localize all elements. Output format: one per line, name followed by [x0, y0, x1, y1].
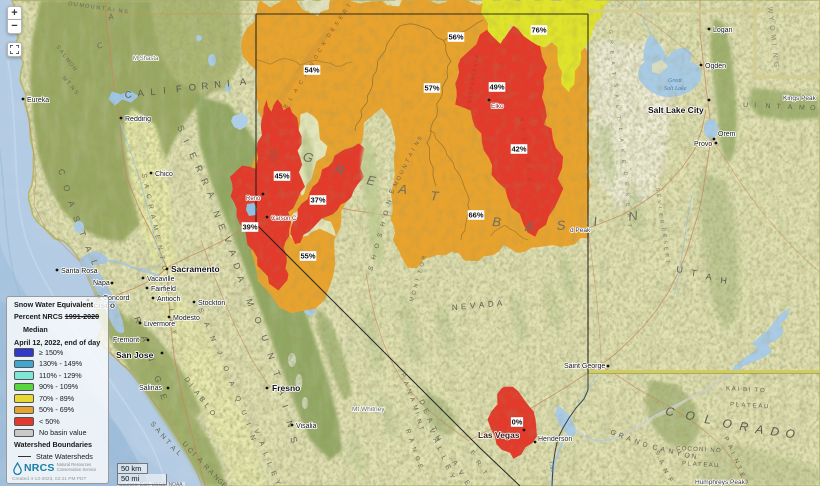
svg-text:66%: 66%: [468, 211, 483, 220]
svg-text:Salinas: Salinas: [139, 385, 162, 392]
svg-text:M Shasta: M Shasta: [133, 56, 159, 62]
svg-text:V: V: [470, 301, 476, 310]
svg-text:Salt Lake City: Salt Lake City: [648, 105, 704, 115]
svg-text:Napa: Napa: [93, 280, 110, 287]
svg-text:N: N: [96, 5, 101, 11]
svg-text:R: R: [201, 81, 209, 92]
svg-text:Salt Lake: Salt Lake: [664, 86, 687, 92]
svg-text:U: U: [714, 463, 719, 469]
svg-text:Kings Peak: Kings Peak: [783, 95, 817, 102]
svg-text:M: M: [523, 157, 530, 162]
svg-text:H: H: [720, 275, 728, 286]
svg-text:Henderson: Henderson: [538, 436, 572, 443]
svg-text:Chico: Chico: [155, 171, 173, 178]
svg-text:O: O: [810, 105, 816, 112]
svg-text:A: A: [479, 300, 485, 309]
svg-text:C: C: [124, 90, 132, 101]
svg-text:Fairfield: Fairfield: [151, 286, 176, 293]
svg-text:Visalia: Visalia: [296, 423, 317, 430]
svg-text:T: T: [610, 72, 616, 76]
svg-text:Antioch: Antioch: [157, 296, 180, 303]
svg-text:42%: 42%: [511, 145, 526, 154]
svg-text:E: E: [753, 403, 757, 409]
svg-text:Elko: Elko: [491, 103, 504, 110]
svg-text:O: O: [722, 416, 733, 431]
svg-text:N: N: [452, 303, 458, 312]
svg-text:A: A: [497, 299, 503, 308]
svg-text:A: A: [741, 403, 745, 409]
svg-text:N: N: [710, 448, 715, 454]
svg-text:E: E: [461, 302, 467, 311]
svg-text:G: G: [607, 30, 613, 35]
svg-text:d Peak: d Peak: [570, 227, 591, 234]
svg-text:Provo: Provo: [694, 141, 712, 148]
svg-text:P: P: [682, 461, 686, 467]
svg-text:55%: 55%: [300, 252, 315, 261]
svg-text:N: N: [214, 79, 222, 90]
svg-text:O: O: [693, 447, 698, 453]
svg-text:Fremont: Fremont: [113, 337, 139, 344]
svg-text:Fresno: Fresno: [272, 383, 300, 393]
svg-text:U: U: [743, 102, 748, 109]
svg-text:O: O: [760, 388, 765, 394]
svg-text:B: B: [743, 387, 747, 393]
svg-text:F: F: [176, 84, 183, 95]
svg-text:Logan: Logan: [713, 27, 733, 34]
svg-text:Stockton: Stockton: [198, 300, 225, 307]
svg-text:U: U: [90, 4, 95, 10]
svg-text:Ogden: Ogden: [705, 63, 726, 70]
svg-text:Sacramento: Sacramento: [171, 264, 220, 274]
svg-text:Eureka: Eureka: [27, 97, 49, 104]
svg-text:A: A: [524, 219, 534, 234]
svg-text:Reno: Reno: [246, 196, 261, 202]
svg-text:A: A: [693, 462, 697, 468]
svg-text:B: B: [492, 214, 502, 230]
svg-text:45%: 45%: [274, 172, 289, 181]
svg-text:Livermore: Livermore: [144, 321, 175, 328]
svg-text:O: O: [685, 408, 696, 423]
svg-text:T: T: [754, 388, 758, 394]
svg-text:O: O: [682, 446, 687, 452]
svg-text:S: S: [556, 217, 566, 233]
svg-text:A: A: [732, 386, 736, 392]
svg-text:37%: 37%: [310, 196, 325, 205]
svg-text:E: E: [703, 462, 707, 468]
svg-text:A: A: [709, 463, 713, 469]
svg-text:54%: 54%: [304, 66, 319, 75]
svg-text:Las Vegas: Las Vegas: [478, 430, 520, 440]
svg-text:A: A: [788, 104, 793, 111]
svg-text:T: T: [626, 224, 632, 228]
svg-text:M: M: [769, 34, 776, 41]
svg-text:Carson C: Carson C: [271, 216, 297, 222]
svg-text:O: O: [188, 82, 196, 93]
svg-text:N: N: [699, 447, 704, 453]
svg-text:O: O: [785, 426, 796, 441]
svg-text:K: K: [726, 386, 730, 392]
svg-text:O: O: [716, 448, 721, 454]
svg-text:L: L: [150, 87, 156, 98]
svg-text:Orem: Orem: [718, 131, 736, 138]
svg-text:Vacaville: Vacaville: [147, 276, 175, 283]
svg-text:76%: 76%: [531, 26, 546, 35]
svg-text:N: N: [118, 8, 123, 14]
svg-text:49%: 49%: [489, 83, 504, 92]
svg-text:Redding: Redding: [125, 116, 151, 123]
svg-text:T: T: [698, 462, 702, 468]
svg-text:Great: Great: [668, 78, 682, 84]
svg-text:Humphreys Peak: Humphreys Peak: [695, 479, 746, 486]
svg-text:T: T: [747, 403, 751, 409]
svg-text:U: U: [676, 264, 684, 275]
svg-text:56%: 56%: [448, 33, 463, 42]
svg-text:0%: 0%: [512, 418, 523, 427]
svg-text:39%: 39%: [242, 223, 257, 232]
svg-text:T: T: [615, 116, 621, 120]
svg-text:N: N: [765, 103, 770, 110]
svg-text:P: P: [730, 402, 734, 408]
svg-text:57%: 57%: [424, 84, 439, 93]
svg-text:San Jose: San Jose: [116, 350, 154, 360]
svg-text:Modesto: Modesto: [173, 315, 200, 322]
svg-text:D: D: [488, 300, 494, 309]
svg-text:Mt Whitney: Mt Whitney: [352, 406, 385, 413]
svg-text:Santa Rosa: Santa Rosa: [61, 268, 98, 275]
svg-text:A: A: [758, 404, 762, 410]
svg-text:I: I: [754, 103, 756, 110]
svg-text:U: U: [764, 404, 769, 410]
svg-text:Saint George: Saint George: [564, 363, 605, 370]
svg-text:G: G: [772, 62, 779, 68]
svg-text:W: W: [766, 7, 774, 15]
svg-text:U: U: [73, 2, 78, 8]
svg-text:M: M: [799, 105, 805, 112]
svg-text:N: N: [771, 52, 778, 58]
